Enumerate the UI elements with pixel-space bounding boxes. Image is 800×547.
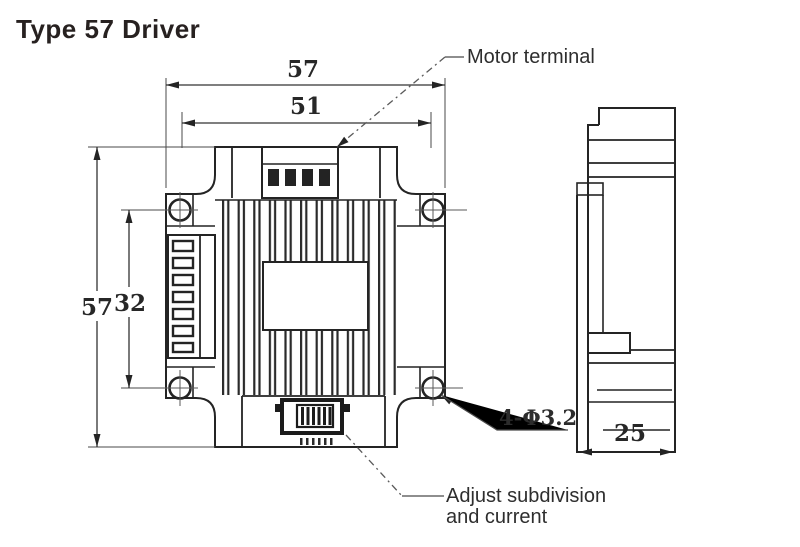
adjust-label-line1: Adjust subdivision [446,485,606,507]
side-view-outline [577,108,675,452]
dim-label-51: 51 [290,93,322,120]
dim-front-width-holes: 51 [182,93,431,148]
dim-front-height-holes: 32 [113,210,164,388]
motor-terminal-label: Motor terminal [467,46,595,68]
mounting-holes-label: 4-Φ3.2 [499,405,577,430]
control-connector [168,235,215,358]
callout-adjust-switch: Adjust subdivision and current [346,435,606,528]
side-clip [577,183,603,195]
dim-label-32: 32 [114,290,146,317]
adjust-label-line2: and current [446,506,548,528]
dip-switch [275,400,350,445]
front-view [162,147,467,447]
dim-side-depth: 25 [579,420,673,456]
dip-marking-ticks [300,438,333,445]
technical-drawing-page: Type 57 Driver [0,0,800,547]
side-view [577,108,675,452]
drawing-canvas: 57 51 57 32 [0,0,800,547]
dim-label-25: 25 [614,420,646,447]
leader-arrow [337,137,349,147]
side-switch-profile [588,333,630,353]
label-plate [263,262,368,330]
dim-label-57-left: 57 [81,294,113,321]
dip-screw-right [343,404,350,412]
dim-label-57-top: 57 [287,56,319,83]
callout-motor-terminal: Motor terminal [337,46,595,147]
motor-terminal-block [232,147,380,198]
callout-mounting-holes: 4-Φ3.2 [441,395,577,430]
page-title: Type 57 Driver [16,14,200,45]
